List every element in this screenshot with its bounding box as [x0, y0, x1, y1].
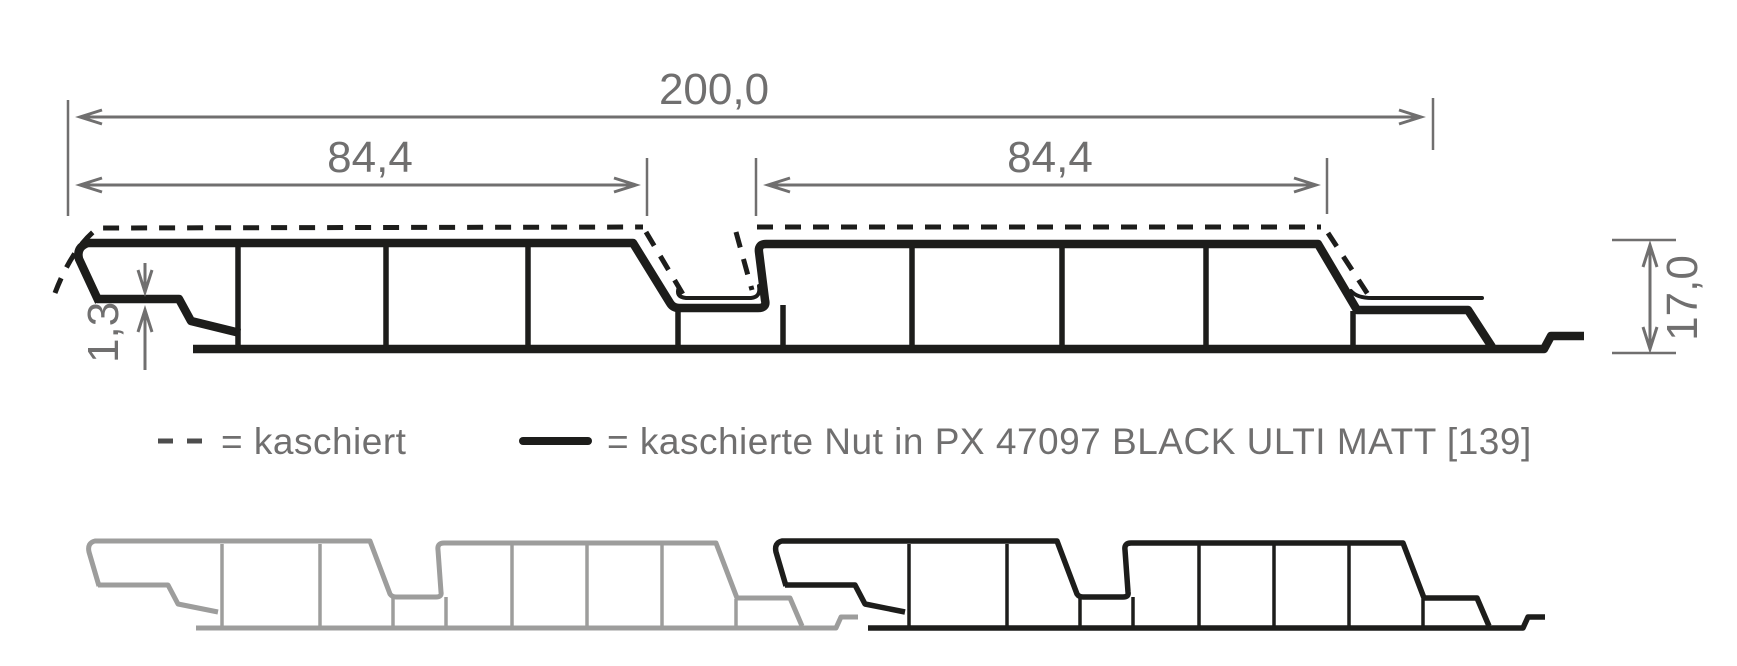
legend: = kaschiert = kaschierte Nut in PX 47097… — [158, 421, 1532, 462]
profile-webs — [238, 246, 1353, 349]
tongue-lamination-line — [1351, 291, 1482, 298]
dimension-label: 1,3 — [79, 302, 128, 363]
groove-lamination-line — [678, 286, 759, 298]
gray-panel — [89, 541, 858, 628]
legend-solid-label: = kaschierte Nut in PX 47097 BLACK ULTI … — [607, 421, 1532, 462]
black-panel-bottom-line — [868, 617, 1545, 628]
lamination-dashed-outline — [55, 227, 1369, 296]
dashed-line — [736, 232, 752, 290]
dimension-face-left: 84,4 — [80, 133, 647, 216]
dimension-label: 17,0 — [1658, 255, 1707, 341]
panel-profile-technical-drawing: 200,0 84,4 84,4 — [0, 0, 1737, 666]
dimension-label: 84,4 — [1007, 133, 1093, 182]
black-panel-hook-mask — [783, 546, 897, 608]
dimension-label: 200,0 — [659, 65, 769, 114]
black-panel — [776, 541, 1545, 628]
gray-panel-bottom-line — [196, 617, 858, 628]
dimension-height: 17,0 — [1612, 240, 1707, 353]
dimension-label: 84,4 — [327, 133, 413, 182]
profile-bottom-line — [193, 336, 1584, 349]
legend-dashed-label: = kaschiert — [221, 421, 407, 462]
gray-panel-hook-ledge — [98, 585, 218, 612]
gray-panel-webs — [222, 544, 736, 628]
dimension-overall-width: 200,0 — [68, 65, 1433, 216]
joined-panels-illustration — [89, 541, 1545, 628]
black-panel-webs — [909, 544, 1423, 628]
dimension-face-right: 84,4 — [756, 133, 1327, 216]
profile-cross-section — [55, 227, 1584, 349]
dashed-line — [55, 227, 643, 293]
